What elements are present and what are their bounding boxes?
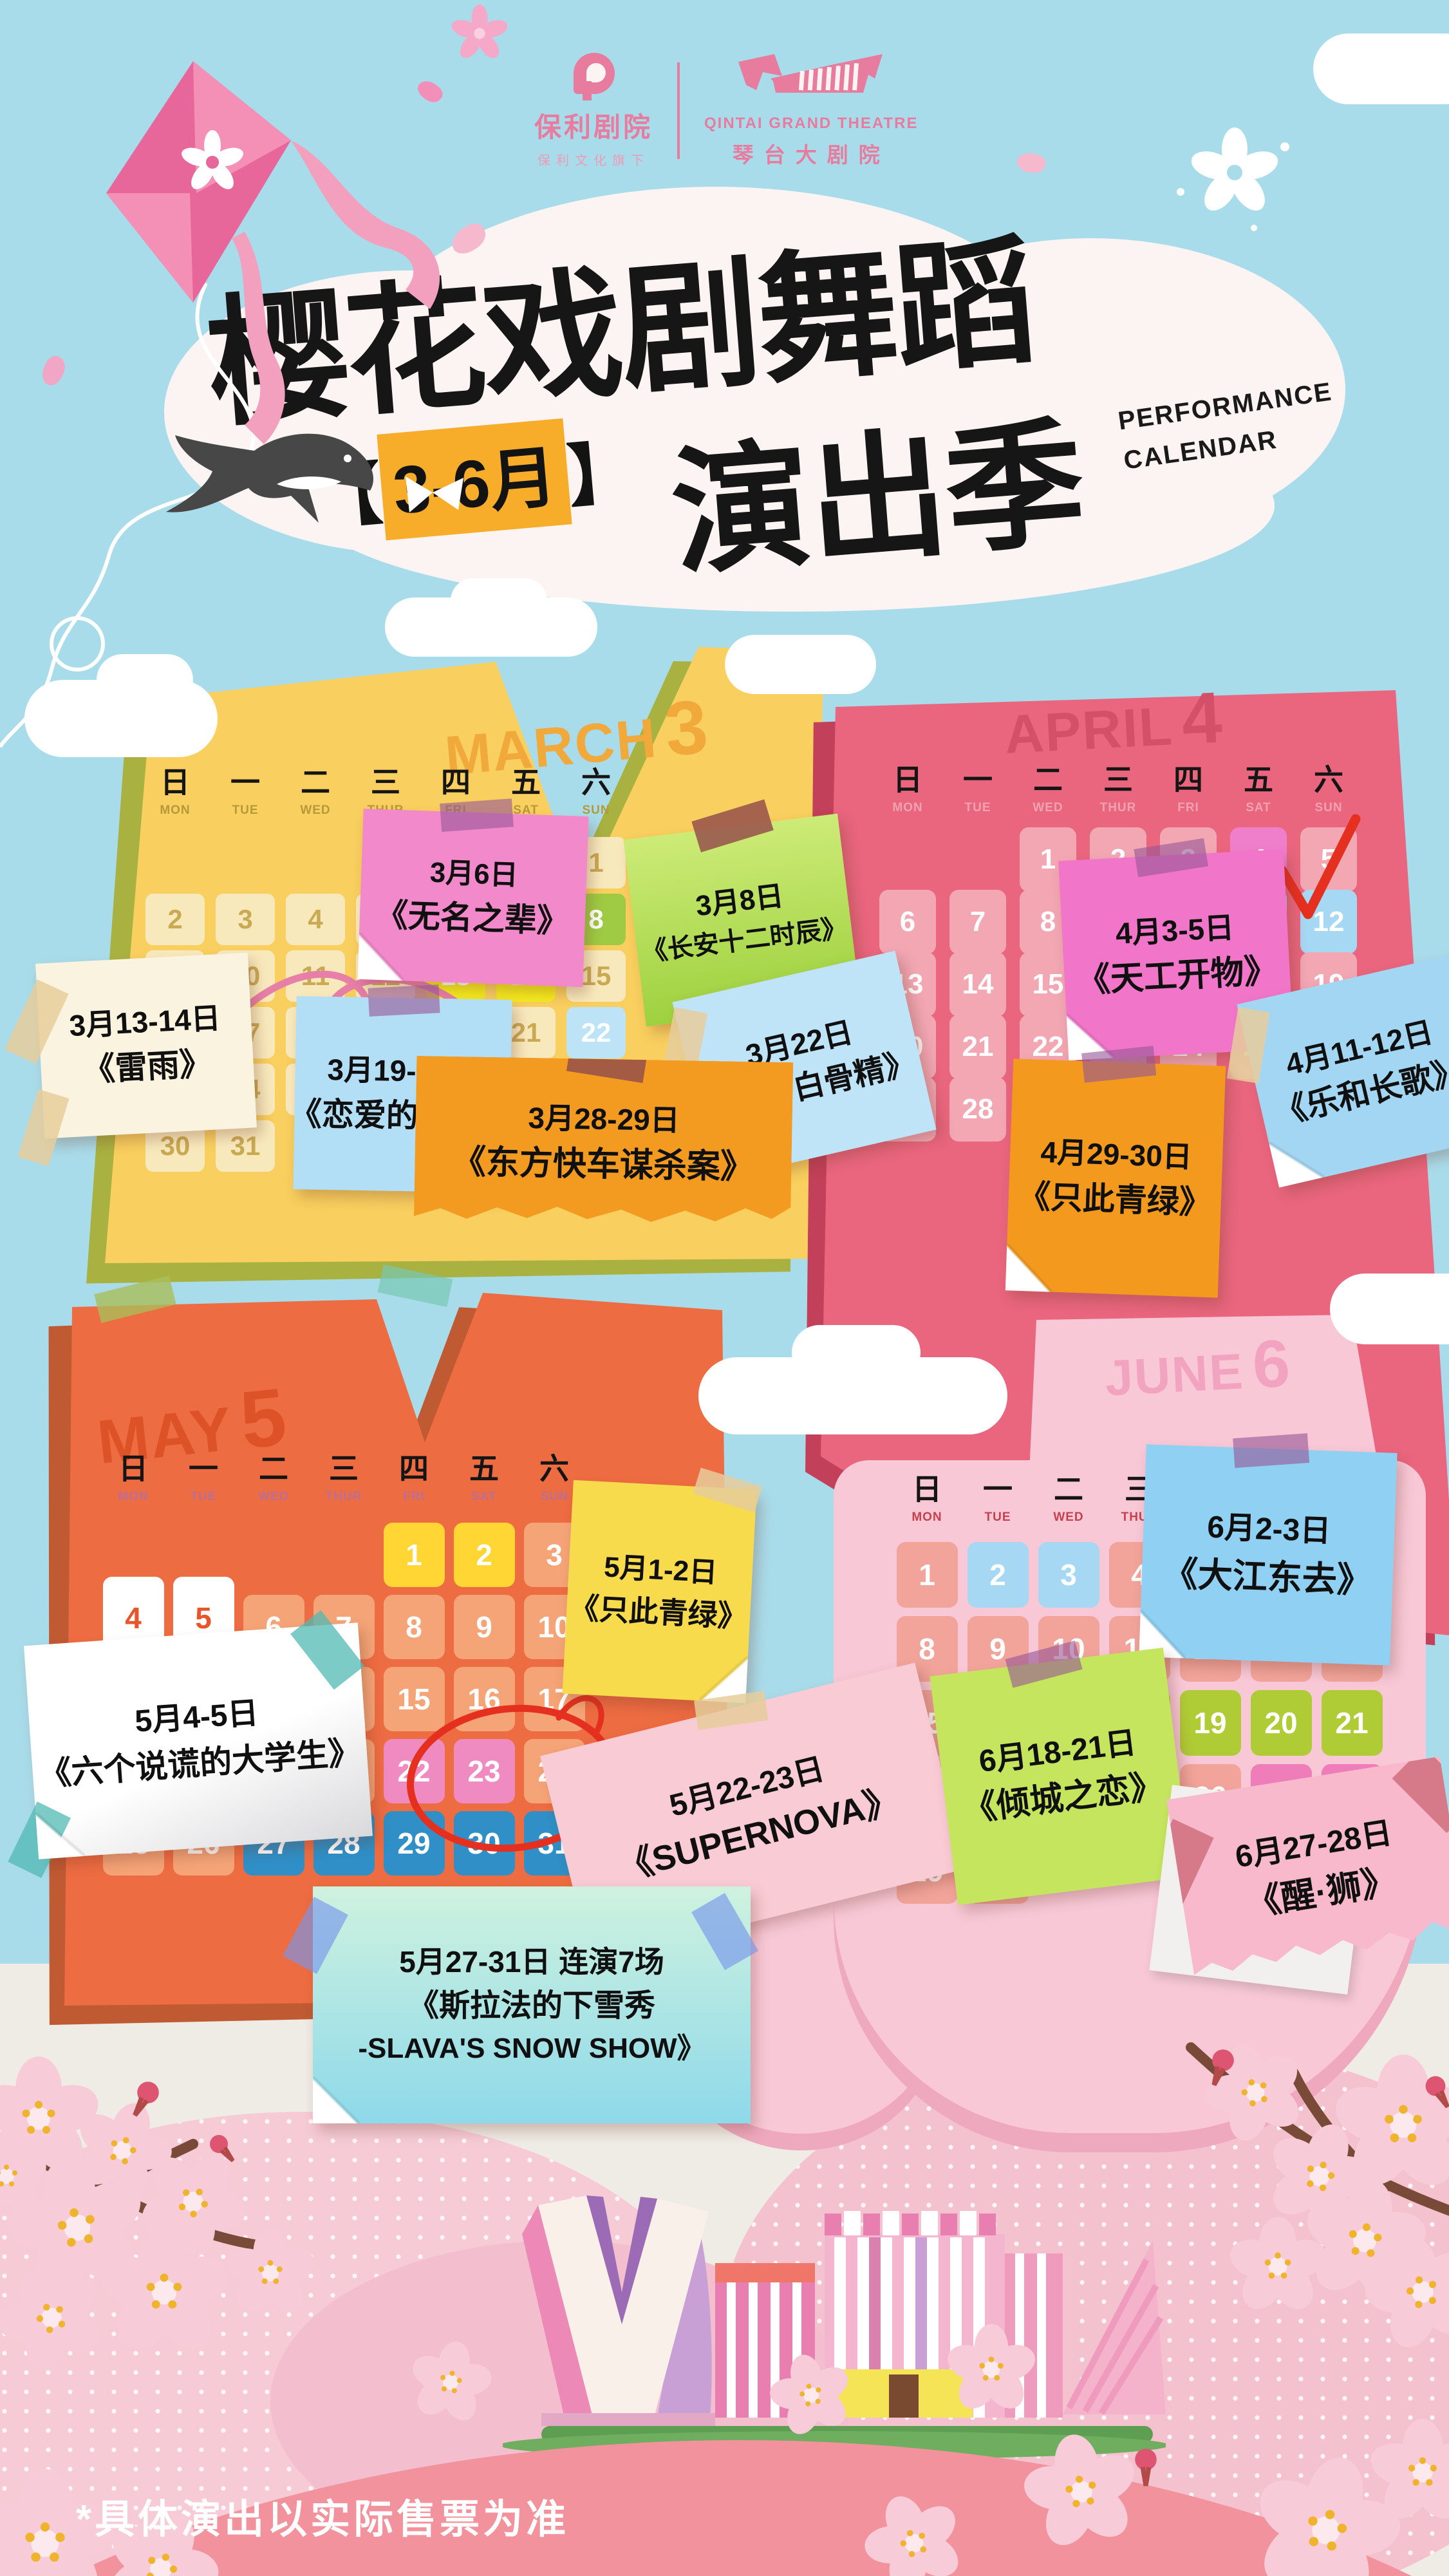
note-date: 3月28-29日	[528, 1096, 680, 1142]
note-title: 《大江东去》	[1163, 1548, 1373, 1606]
note-date: 6月2-3日	[1206, 1505, 1331, 1554]
cloud	[97, 654, 193, 706]
sticky-note-may12: 5月1-2日 《只此青绿》	[563, 1480, 757, 1703]
cloud	[1330, 1274, 1449, 1344]
sticky-note-may45: 5月4-5日 《六个说谎的大学生》	[24, 1622, 373, 1859]
sticky-note-mar2829: 3月28-29日 《东方快车谋杀案》	[414, 1056, 793, 1231]
note-date: 4月3-5日	[1114, 906, 1235, 955]
note-date: 3月6日	[429, 852, 519, 897]
cloud	[725, 635, 876, 694]
cherry-blossoms-front	[0, 2382, 1449, 2576]
curled-corner	[35, 1810, 85, 1859]
tape-piece	[691, 800, 773, 852]
cloud	[451, 578, 547, 623]
note-date: 5月4-5日	[133, 1691, 259, 1744]
tape-piece	[566, 1038, 648, 1083]
sticky-note-jun23: 6月2-3日 《大江东去》	[1139, 1444, 1397, 1665]
tape-piece	[283, 1897, 348, 1974]
note-title: 《只此青绿》	[568, 1586, 748, 1638]
footer-disclaimer: *具体演出以实际售票为准	[76, 2487, 569, 2544]
note-date: 5月27-31日 连演7场	[399, 1941, 664, 1984]
sticky-note-mar1314: 3月13-14日 《雷雨》	[35, 953, 257, 1139]
tape-piece	[693, 1468, 762, 1512]
curled-corner	[1005, 1244, 1053, 1292]
cloud	[1313, 33, 1449, 104]
note-title: 《只此青绿》	[1018, 1173, 1212, 1227]
curled-corner	[1269, 1132, 1324, 1187]
tape-piece	[1392, 1747, 1449, 1833]
note-title: 《东方快车谋杀案》	[452, 1138, 754, 1192]
sticky-note-jun1821: 6月18-21日 《倾城之恋》	[930, 1648, 1192, 1905]
tape-piece	[1005, 1641, 1083, 1688]
tape-piece	[1233, 1433, 1309, 1468]
tape-piece	[290, 1610, 364, 1690]
note-title: 《天工开物》	[1076, 946, 1279, 1006]
note-date: 4月29-30日	[1040, 1131, 1193, 1179]
tape-piece	[440, 798, 514, 832]
tape-piece	[368, 984, 440, 1017]
note-date: 3月13-14日	[68, 997, 221, 1048]
tape-piece	[691, 1893, 758, 1970]
performance-calendar-poster: 保利剧院 保利文化旗下 QINTAI GRAND THEATRE 琴台大剧院	[0, 0, 1449, 2576]
cloud	[792, 1325, 921, 1380]
tape-piece	[17, 1089, 69, 1167]
tape-piece	[1134, 838, 1208, 878]
tape-piece	[5, 979, 69, 1064]
sticky-note-mar6: 3月6日 《无名之辈》	[357, 809, 588, 987]
note-date: 5月1-2日	[603, 1547, 718, 1594]
note-title: 《雷雨》	[82, 1040, 213, 1094]
curled-corner	[357, 933, 405, 981]
sticky-note-apr2930: 4月29-30日 《只此青绿》	[1005, 1058, 1226, 1297]
